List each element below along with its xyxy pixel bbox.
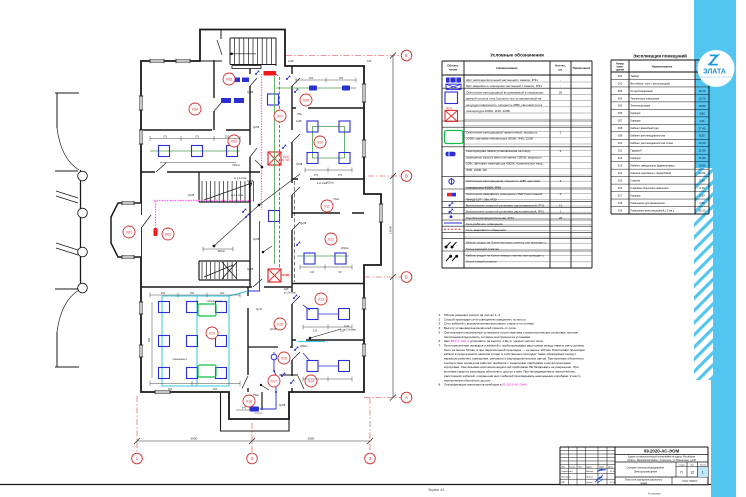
svg-text:освещения, высота мачты не мен: освещения, высота мачты не менее 12В Вт,… [466,155,542,159]
svg-text:75см: 75см [253,393,259,397]
svg-text:2,50: 2,50 [699,194,705,198]
svg-text:10,80: 10,80 [699,171,706,175]
svg-text:шт.: шт. [558,68,563,72]
svg-text:12: 12 [690,471,694,475]
svg-text:Выключатель открытой установки: Выключатель открытой установки двухклави… [466,210,544,214]
svg-text:009: 009 [618,134,623,138]
svg-text:ванный потолок типа Грильято и: ванный потолок типа Грильято или установ… [466,97,542,101]
svg-text:температура 4000К, IP65: температура 4000К, IP65 [466,185,501,189]
svg-text:35,10: 35,10 [699,208,706,212]
svg-text:140: 140 [242,406,247,410]
svg-text:150: 150 [161,291,166,295]
svg-text:Е: Е [405,53,408,58]
svg-text:170: 170 [338,173,343,177]
svg-text:Коридор: Коридор [631,112,641,115]
svg-text:Условные обозначения: Условные обозначения [490,52,544,58]
svg-text:Кабинет рентгенодиагностики ст: Кабинет рентгенодиагностики стома [631,142,674,145]
svg-text:Примечание: Примечание [573,66,591,70]
svg-text:018: 018 [246,399,252,403]
svg-text:007: 007 [277,114,283,118]
svg-text:Qх08: Qх08 [253,237,260,241]
svg-text:75см: 75см [333,197,339,201]
svg-text:13: 13 [559,203,563,207]
svg-text:Светильник светодиодный, мощно: Светильник светодиодный, мощность 12Вт, … [466,179,540,183]
svg-text:чение: чение [449,68,458,72]
svg-text:150: 150 [190,291,195,295]
svg-text:Коробка распределительная, IP4: Коробка распределительная, IP44 [466,216,514,220]
svg-text:019: 019 [618,208,623,212]
svg-text:ж 1-й этаж: ж 1-й этаж [344,329,356,332]
svg-text:019: 019 [209,331,215,335]
svg-text:7: 7 [439,344,441,348]
svg-text:А(х): А(х) [446,107,452,111]
svg-text:более низкой отметки: более низкой отметки [466,260,497,264]
svg-text:область, Яковлевский район, г.: область, Яковлевский район, г.Строитель,… [627,459,697,462]
svg-text:Qх08: Qх08 [296,162,303,166]
svg-text:1х08: 1х08 [288,59,294,63]
svg-text:Стерилизационная: Стерилизационная [631,90,654,93]
svg-text:018: 018 [618,201,623,205]
svg-text:1: 1 [702,471,704,475]
svg-text:3,80: 3,80 [699,111,705,115]
svg-text:IP65, 220В, WF: IP65, 220В, WF [466,168,487,172]
svg-text:Тамбур: Тамбур [631,75,640,78]
svg-text:Светильник аварийного освещени: Светильник аварийного освещения с БАП по… [466,192,542,196]
svg-text:4,80: 4,80 [699,201,705,205]
svg-text:А: А [405,395,408,400]
svg-text:Qх08: Qх08 [253,125,260,129]
svg-text:002: 002 [165,232,171,236]
svg-text:Кабинет заведующего (администр: Кабинет заведующего (администраци [631,165,676,168]
svg-text:160: 160 [339,76,344,80]
svg-text:8,50: 8,50 [699,134,705,138]
svg-text:несущую поверхность, мощность: несущую поверхность, мощность 28Вт, свет… [466,103,543,107]
svg-text:-: - [560,84,561,88]
svg-text:Орлов: Орлов [586,482,593,484]
svg-text:014: 014 [308,379,314,383]
svg-text:006: 006 [618,111,623,115]
svg-text:Иванов: Иванов [586,471,594,473]
svg-text:Щит распределительный настенны: Щит распределительный настенный с замком… [466,78,538,82]
svg-text:Листов: Листов [700,465,706,467]
svg-text:012: 012 [328,237,334,241]
svg-text:корпусами. Светильники креплен: корпусами. Светильники крепления жидкост… [444,365,579,369]
svg-text:Сеть аварийного освещения: Сеть аварийного освещения [466,228,506,232]
svg-text:300: 300 [147,337,151,342]
svg-text:160: 160 [309,76,314,80]
svg-text:Проверил: Проверил [561,477,571,479]
svg-text:Z: Z [709,53,719,70]
svg-text:009: 009 [303,98,309,102]
svg-text:170: 170 [314,173,319,177]
svg-text:Щит ВРУ-1, ЩР-1 установить на: Щит ВРУ-1, ЩР-1 установить на высоте 1,8… [444,339,544,343]
svg-text:5: 5 [439,330,441,334]
svg-text:В: В [405,174,408,179]
svg-text:Кладовая уборочного инвентаря: Кладовая уборочного инвентаря [631,187,669,190]
svg-text:Qх11: Qх11 [256,307,263,311]
svg-text:Спецификацию материалов прибор: Спецификацию материалов приборов в 09.20… [444,383,527,387]
svg-text:4,61: 4,61 [699,119,705,123]
svg-text:200см: 200см [341,246,349,250]
svg-text:Кол.уч: Кол.уч [569,466,575,468]
svg-text:Кабинет врачебный (дет.: Кабинет врачебный (дет. [631,127,660,130]
svg-text:6580: 6580 [308,437,315,441]
svg-text:200см: 200см [300,344,308,348]
svg-text:11,80: 11,80 [699,156,706,160]
svg-text:Формат А3: Формат А3 [428,488,444,492]
svg-text:10Вт, цветовая температура 400: 10Вт, цветовая температура 4000К, номина… [466,162,544,166]
svg-text:Qх08: Qх08 [247,267,254,271]
svg-text:005: 005 [618,104,623,108]
svg-text:Кабель уходит на более низкую: Кабель уходит на более низкую отметку ил… [466,253,544,257]
svg-text:Щит аварийного освещения насте: Щит аварийного освещения настенный с зам… [466,84,542,88]
svg-text:150см: 150см [217,250,224,253]
svg-text:017: 017 [271,379,277,383]
svg-text:6: 6 [439,339,441,343]
svg-text:Светодиодная лампа установленн: Светодиодная лампа установленная на опор… [466,149,531,153]
svg-text:температура 4000К, IP20, 220В: температура 4000К, IP20, 220В [466,109,510,113]
svg-text:Qх08: Qх08 [188,193,195,197]
svg-text:003: 003 [231,139,237,143]
svg-text:Qх08: Qх08 [270,327,277,331]
svg-text:013: 013 [318,297,324,301]
svg-text:Сеть кабелей с выключателями в: Сеть кабелей с выключателями выполнить о… [444,322,535,326]
svg-text:340см: 340см [232,163,240,167]
svg-text:400см: 400см [326,181,334,185]
svg-text:008: 008 [618,126,623,130]
svg-text:Гардероб: Гардероб [631,150,643,153]
svg-text:Светильники специальные устано: Светильники специальные установить после… [444,330,579,334]
svg-text:Помещение для размещения: Помещение для размещения [631,202,666,205]
svg-text:150: 150 [213,387,218,391]
svg-text:ООО "ЗЛАТА": ООО "ЗЛАТА" [682,480,697,483]
svg-text:расстояниях кабелей, сохранени: расстояниях кабелей, сохранения мест каб… [444,374,581,378]
svg-text:26: 26 [559,90,563,94]
svg-text:из 1-й этаж: из 1-й этаж [231,194,244,197]
svg-text:75м: 75м [297,112,302,116]
svg-text:005: 005 [226,77,232,81]
svg-text:Светильник светодиодный гермет: Светильник светодиодный герметичный, мощ… [466,130,538,134]
svg-text:Qх08: Qх08 [300,221,307,225]
svg-text:ж 1-й этаж: ж 1-й этаж [284,292,296,295]
svg-text:004: 004 [192,107,198,111]
svg-text:130: 130 [313,329,318,333]
svg-text:170: 170 [163,135,168,139]
svg-text:016: 016 [281,356,287,360]
svg-text:160: 160 [367,59,372,63]
svg-text:Разработал: Разработал [561,471,573,473]
svg-text:№док.: №док. [586,465,593,468]
svg-text:Комната персонала с гардеробно: Комната персонала с гардеробной [631,172,672,175]
svg-text:Общие указания смотри на листа: Общие указания смотри на листах 1,-3. [444,313,501,317]
svg-text:Qх08: Qх08 [247,90,254,94]
svg-text:Силовое электрооборудование.: Силовое электрооборудование. [626,466,665,470]
svg-text:26: 26 [559,216,563,220]
svg-text:Qх08: Qх08 [247,179,254,183]
svg-text:11.20: 11.20 [610,471,616,473]
svg-text:14,10: 14,10 [699,141,706,145]
svg-text:27,40: 27,40 [699,126,706,130]
svg-text:студия профессиональной стомат: студия профессиональной стоматологии [697,76,731,79]
svg-text:этажа: этажа [640,482,647,485]
svg-text:из 1-й этаж: из 1-й этаж [234,177,247,180]
svg-text:001: 001 [126,230,132,234]
svg-text:Петров: Петров [586,477,594,479]
svg-text:015: 015 [618,178,623,182]
svg-text:11.20: 11.20 [610,482,616,484]
svg-text:Электрощитовая: Электрощитовая [631,105,651,108]
svg-text:015: 015 [277,322,283,326]
svg-text:1х08: 1х08 [296,119,302,123]
svg-text:помещение 1: помещение 1 [173,358,189,361]
svg-text:быть не менее 50 мм, а при пар: быть не менее 50 мм, а при параллельной … [444,348,585,352]
svg-text:017: 017 [618,193,623,197]
svg-text:016: 016 [618,186,623,190]
svg-text:6900: 6900 [191,437,198,441]
svg-text:Qх08: Qх08 [279,403,286,407]
svg-text:Коридор: Коридор [631,157,641,160]
svg-text:007: 007 [618,119,623,123]
svg-text:14540: 14540 [389,225,393,234]
svg-text:012: 012 [618,156,623,160]
svg-text:10,70: 10,70 [699,89,706,93]
svg-text:Сеть рабочего освещения: Сеть рабочего освещения [466,222,503,226]
svg-text:011: 011 [618,149,623,153]
svg-text:013: 013 [618,164,623,168]
svg-text:более высокой отметки: более высокой отметки [466,247,499,251]
svg-text:Техническое помещение: Техническое помещение [631,97,660,100]
svg-text:Коридор: Коридор [631,194,641,197]
svg-text:Санузел: Санузел [631,179,641,182]
svg-text:"ВАКД-С07", 3Вт, IP20: "ВАКД-С07", 3Вт, IP20 [466,198,497,202]
svg-text:Лист: Лист [690,465,694,467]
svg-text:15,80: 15,80 [699,104,706,108]
svg-text:Светильник светодиодный встраи: Светильник светодиодный встраиваемый в п… [466,90,544,94]
svg-text:Помещение вентиляционной с 2-м: Помещение вентиляционной с 2-мя у [631,209,675,212]
svg-text:Наименование: Наименование [652,65,673,69]
svg-text:11,80: 11,80 [699,149,706,153]
svg-text:002: 002 [618,81,623,85]
svg-text:-: - [560,78,561,82]
svg-text:Коридор: Коридор [631,120,641,123]
svg-text:ГИП: ГИП [561,482,566,484]
svg-text:8: 8 [439,383,441,387]
svg-text:помещение 2: помещение 2 [207,300,223,303]
svg-text:Стадия: Стадия [678,465,684,467]
svg-text:Наименование: Наименование [496,66,518,70]
svg-text:3: 3 [439,322,441,326]
svg-text:014: 014 [618,171,623,175]
svg-text:Кабель уходит на более высокую: Кабель уходит на более высокую отметку и… [466,241,547,245]
svg-text:каркасом рабочего освещения, с: каркасом рабочего освещения, светового и… [444,357,584,361]
svg-text:Лист: Лист [578,466,583,468]
svg-text:Кабинет рентгенодиагностики: Кабинет рентгенодиагностики [631,135,666,138]
svg-text:150: 150 [168,387,173,391]
svg-text:Б: Б [405,275,408,280]
svg-text:щения: щения [616,69,625,72]
svg-text:3,30: 3,30 [699,186,705,190]
svg-text:13,70: 13,70 [699,96,706,100]
svg-text:Здание стоматологической полик: Здание стоматологической поликлиники на … [628,456,696,459]
svg-text:150: 150 [220,291,225,295]
svg-text:003: 003 [618,89,623,93]
svg-text:170: 170 [195,135,200,139]
svg-text:130: 130 [225,135,230,139]
svg-text:Подп.: Подп. [599,466,605,468]
svg-text:09.2020-АС-ЭОМ: 09.2020-АС-ЭОМ [644,448,680,453]
svg-text:1-й этаж: 1-й этаж [317,181,327,185]
svg-text:Вестибюль: холл с регистратуро: Вестибюль: холл с регистратурой, [631,82,671,85]
svg-text:Электроосвещение: Электроосвещение [634,470,658,474]
svg-text:004: 004 [618,96,623,100]
svg-text:Изм.: Изм. [561,466,566,468]
svg-text:10,80: 10,80 [699,164,706,168]
svg-text:Экспликация помещений: Экспликация помещений [633,54,687,59]
svg-text:130: 130 [310,270,315,274]
svg-text:200Вт, цветовая температура 30: 200Вт, цветовая температура 3000К, IP65,… [466,137,533,141]
svg-text:011: 011 [324,204,330,208]
svg-text:Копировал: Копировал [648,492,661,496]
svg-text:Выключатель открытой установки: Выключатель открытой установки одноклави… [466,203,545,207]
svg-text:А(х): А(х) [283,155,289,159]
svg-text:2,60: 2,60 [699,179,705,183]
svg-text:010: 010 [317,140,323,144]
svg-text:001: 001 [618,74,623,78]
svg-text:ЗЛАТА: ЗЛАТА [703,69,726,76]
svg-text:010: 010 [618,141,623,145]
svg-text:1: 1 [439,313,441,317]
